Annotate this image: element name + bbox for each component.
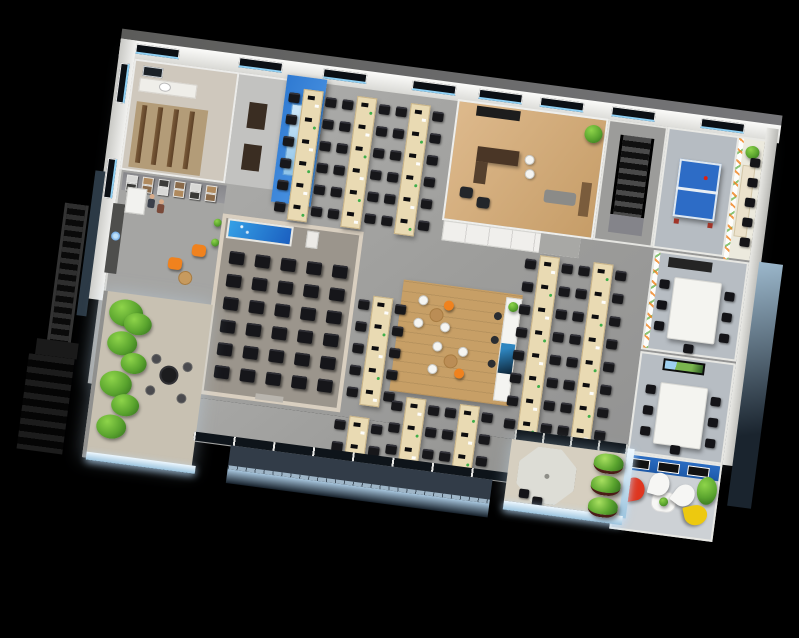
- desktop-monitor: [296, 183, 303, 188]
- desk-row: [287, 89, 324, 222]
- desktop-monitor: [308, 95, 315, 100]
- office-chair: [422, 448, 434, 459]
- office-chair: [316, 162, 328, 173]
- office-chair: [274, 201, 286, 212]
- office-chair: [578, 265, 590, 276]
- desktop-monitor: [350, 190, 357, 195]
- water-bottle: [420, 140, 423, 143]
- papers: [360, 177, 364, 180]
- desktop-monitor: [347, 212, 354, 217]
- office-chair: [426, 155, 438, 166]
- office-chair: [364, 213, 376, 224]
- office-chair: [478, 434, 490, 445]
- office-chair: [367, 191, 379, 202]
- office-chair: [327, 208, 339, 219]
- office-chair: [384, 193, 396, 204]
- office-chair: [603, 361, 615, 372]
- papers: [468, 441, 472, 444]
- desktop-monitor: [355, 146, 362, 151]
- desktop-monitor: [594, 292, 601, 297]
- office-chair: [441, 429, 453, 440]
- papers: [303, 192, 307, 195]
- office-chair: [475, 456, 487, 467]
- desktop-monitor: [541, 285, 548, 290]
- office-chair: [612, 293, 624, 304]
- papers: [589, 392, 593, 395]
- desktop-monitor: [538, 307, 545, 312]
- water-bottle: [605, 278, 608, 281]
- office-chair: [439, 451, 451, 462]
- office-chair: [569, 334, 581, 345]
- desktop-monitor: [293, 205, 300, 210]
- office-chair: [325, 97, 337, 108]
- office-chair: [319, 140, 331, 151]
- desktop-monitor: [377, 302, 384, 307]
- office-chair: [425, 427, 437, 438]
- office-chair: [572, 311, 584, 322]
- desk-row: [394, 103, 431, 236]
- office-chair: [333, 164, 345, 175]
- office-chair: [615, 270, 627, 281]
- office-chair: [339, 121, 351, 132]
- desktop-monitor: [579, 406, 586, 411]
- papers: [384, 311, 388, 314]
- papers: [365, 133, 369, 136]
- desktop-monitor: [526, 399, 533, 404]
- office-chair: [322, 119, 334, 130]
- papers: [378, 355, 382, 358]
- desk-row: [340, 96, 377, 229]
- office-chair: [313, 184, 325, 195]
- office-chair: [600, 384, 612, 395]
- desktop-monitor: [588, 337, 595, 342]
- water-bottle: [358, 199, 361, 202]
- office-chair: [346, 386, 358, 397]
- papers: [601, 301, 605, 304]
- desktop-monitor: [350, 444, 357, 449]
- office-chair: [560, 402, 572, 413]
- desktop-monitor: [576, 428, 583, 433]
- papers: [533, 408, 537, 411]
- papers: [360, 431, 364, 434]
- office-chair: [373, 148, 385, 159]
- office-chair: [334, 419, 346, 430]
- desktop-monitor: [369, 368, 376, 373]
- office-chair: [506, 395, 518, 406]
- office-chair: [394, 304, 406, 315]
- office-chair: [386, 369, 398, 380]
- desktop-monitor: [407, 425, 414, 430]
- papers: [422, 119, 426, 122]
- office-chair: [609, 316, 621, 327]
- water-bottle: [543, 339, 546, 342]
- spiral-stair: [17, 353, 75, 454]
- office-chair: [566, 357, 578, 368]
- office-chair: [606, 339, 618, 350]
- office-chair: [288, 92, 300, 103]
- desktop-monitor: [582, 383, 589, 388]
- desktop-monitor: [371, 346, 378, 351]
- desktop-monitor: [523, 421, 530, 426]
- office-chair: [310, 206, 322, 217]
- office-chair: [342, 99, 354, 110]
- office-chair: [444, 407, 456, 418]
- office-chair: [563, 379, 575, 390]
- office-chair: [432, 111, 444, 122]
- desktop-monitor: [409, 153, 416, 158]
- water-bottle: [414, 184, 417, 187]
- water-bottle: [593, 369, 596, 372]
- desktop-monitor: [464, 411, 471, 416]
- desktop-monitor: [591, 314, 598, 319]
- office-chair: [597, 407, 609, 418]
- office-chair: [391, 400, 403, 411]
- papers: [545, 316, 549, 319]
- office-chair: [509, 372, 521, 383]
- office-chair: [389, 347, 401, 358]
- office-chair: [429, 133, 441, 144]
- office-chair: [543, 400, 555, 411]
- desktop-monitor: [585, 360, 592, 365]
- papers: [412, 456, 416, 459]
- office-chair: [282, 136, 294, 147]
- water-bottle: [377, 377, 380, 380]
- office-chair: [375, 126, 387, 137]
- papers: [410, 206, 414, 209]
- desktop-monitor: [302, 139, 309, 144]
- desktop-monitor: [405, 447, 412, 452]
- office-chair: [575, 288, 587, 299]
- desktop-monitor: [361, 103, 368, 108]
- office-chair: [561, 263, 573, 274]
- office-chair: [423, 176, 435, 187]
- office-chair: [395, 106, 407, 117]
- desktop-monitor: [353, 168, 360, 173]
- desktop-monitor: [544, 262, 551, 267]
- papers: [417, 412, 421, 415]
- office-chair: [427, 405, 439, 416]
- water-bottle: [466, 463, 469, 466]
- desktop-monitor: [415, 110, 422, 115]
- office-chair: [378, 104, 390, 115]
- papers: [551, 271, 555, 274]
- water-bottle: [472, 420, 475, 423]
- water-bottle: [587, 415, 590, 418]
- desktop-monitor: [353, 422, 360, 427]
- desktop-monitor: [299, 161, 306, 166]
- floor-plan: [88, 54, 766, 467]
- water-bottle: [313, 126, 316, 129]
- desktop-monitor: [374, 324, 381, 329]
- office-chair: [389, 150, 401, 161]
- desktop-monitor: [461, 432, 468, 437]
- office-chair: [552, 332, 564, 343]
- office-chair: [277, 179, 289, 190]
- office-chair: [330, 186, 342, 197]
- desktop-monitor: [529, 376, 536, 381]
- office-chair: [503, 418, 515, 429]
- office-chair: [279, 157, 291, 168]
- desktop-monitor: [597, 269, 604, 274]
- parapet: [86, 452, 196, 474]
- office-chair: [420, 198, 432, 209]
- office-chair: [285, 114, 297, 125]
- water-bottle: [382, 333, 385, 336]
- desktop-monitor: [403, 197, 410, 202]
- water-bottle: [408, 228, 411, 231]
- office-chair: [370, 169, 382, 180]
- water-bottle: [549, 294, 552, 297]
- office-chair: [546, 377, 558, 388]
- render-canvas: [0, 0, 799, 638]
- office-chair: [336, 143, 348, 154]
- office-chair: [417, 220, 429, 231]
- desktop-monitor: [366, 390, 373, 395]
- water-bottle: [599, 324, 602, 327]
- papers: [539, 362, 543, 365]
- office-chair: [385, 444, 397, 455]
- office-chair: [512, 349, 524, 360]
- terrace-chair: [518, 488, 529, 498]
- stair-ladder: [47, 203, 89, 345]
- papers: [309, 148, 313, 151]
- office-chair: [549, 354, 561, 365]
- office-chair: [481, 412, 493, 423]
- office-chair: [391, 325, 403, 336]
- desktop-monitor: [412, 131, 419, 136]
- office-chair: [349, 364, 361, 375]
- desktop-monitor: [532, 353, 539, 358]
- office-chair: [388, 422, 400, 433]
- office-chair: [358, 299, 370, 310]
- office-chair: [352, 342, 364, 353]
- desktop-monitor: [305, 117, 312, 122]
- room-umbrella-terrace: [503, 429, 637, 526]
- desktop-monitor: [410, 404, 417, 409]
- water-bottle: [537, 385, 540, 388]
- office-chair: [381, 215, 393, 226]
- water-bottle: [363, 155, 366, 158]
- papers: [595, 346, 599, 349]
- office-chair: [558, 286, 570, 297]
- desktop-monitor: [458, 454, 465, 459]
- office-chair: [392, 128, 404, 139]
- desktop-monitor: [535, 330, 542, 335]
- desktop-monitor: [400, 219, 407, 224]
- papers: [416, 162, 420, 165]
- office-chair: [515, 327, 527, 338]
- office-chair: [518, 304, 530, 315]
- papers: [354, 221, 358, 224]
- office-chair: [387, 172, 399, 183]
- office-chair: [555, 309, 567, 320]
- water-bottle: [369, 112, 372, 115]
- papers: [373, 399, 377, 402]
- office-chair: [524, 258, 536, 269]
- office-chair: [521, 281, 533, 292]
- water-bottle: [301, 214, 304, 217]
- office-chair: [371, 424, 383, 435]
- papers: [315, 104, 319, 107]
- desktop-monitor: [358, 124, 365, 129]
- office-chair: [355, 321, 367, 332]
- desktop-monitor: [406, 175, 413, 180]
- water-bottle: [415, 434, 418, 437]
- water-bottle: [307, 170, 310, 173]
